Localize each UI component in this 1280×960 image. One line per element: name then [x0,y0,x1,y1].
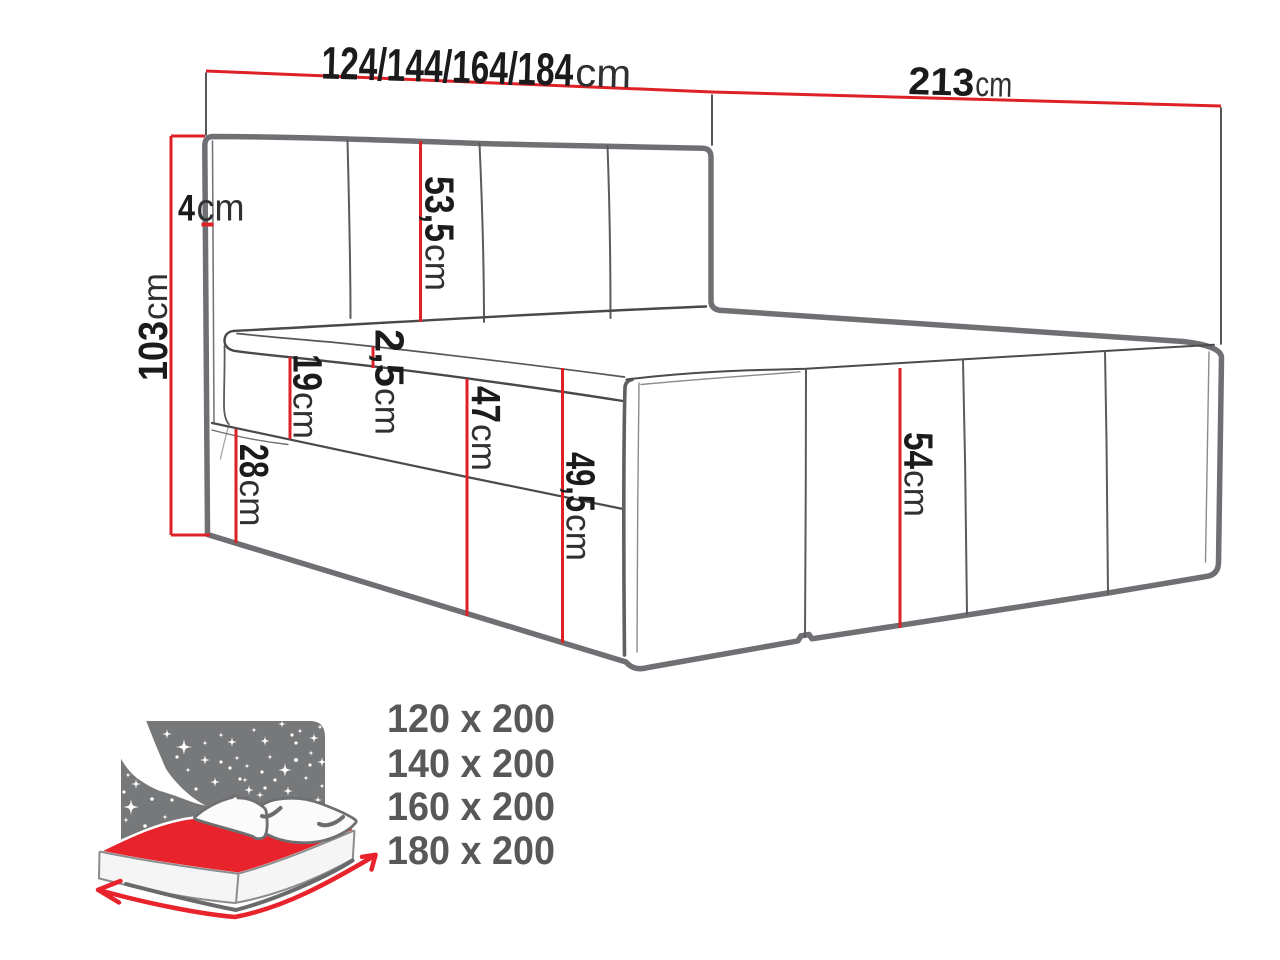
svg-text:120 x 200: 120 x 200 [387,697,555,741]
svg-text:cm: cm [136,273,175,320]
svg-text:cm: cm [418,244,457,291]
svg-text:cm: cm [197,188,245,230]
svg-text:4: 4 [178,188,195,229]
svg-text:2,5: 2,5 [367,329,413,387]
svg-text:cm: cm [559,514,598,561]
svg-text:cm: cm [368,388,407,435]
svg-text:28: 28 [231,444,277,478]
svg-text:54: 54 [896,432,942,469]
svg-text:cm: cm [897,470,936,517]
svg-text:47: 47 [463,386,509,423]
svg-text:cm: cm [575,51,632,97]
svg-text:180 x 200: 180 x 200 [387,829,555,873]
svg-text:cm: cm [232,480,271,527]
svg-text:160 x 200: 160 x 200 [387,785,555,829]
svg-text:cm: cm [286,392,325,439]
svg-text:140 x 200: 140 x 200 [387,742,555,786]
svg-text:19: 19 [285,354,331,391]
svg-text:213: 213 [908,60,975,105]
svg-text:53,5: 53,5 [417,176,463,242]
svg-text:cm: cm [975,65,1013,105]
svg-text:cm: cm [464,424,503,471]
svg-text:49,5: 49,5 [558,452,604,512]
svg-text:124/144/164/184: 124/144/164/184 [321,37,575,96]
svg-text:103: 103 [130,321,176,381]
